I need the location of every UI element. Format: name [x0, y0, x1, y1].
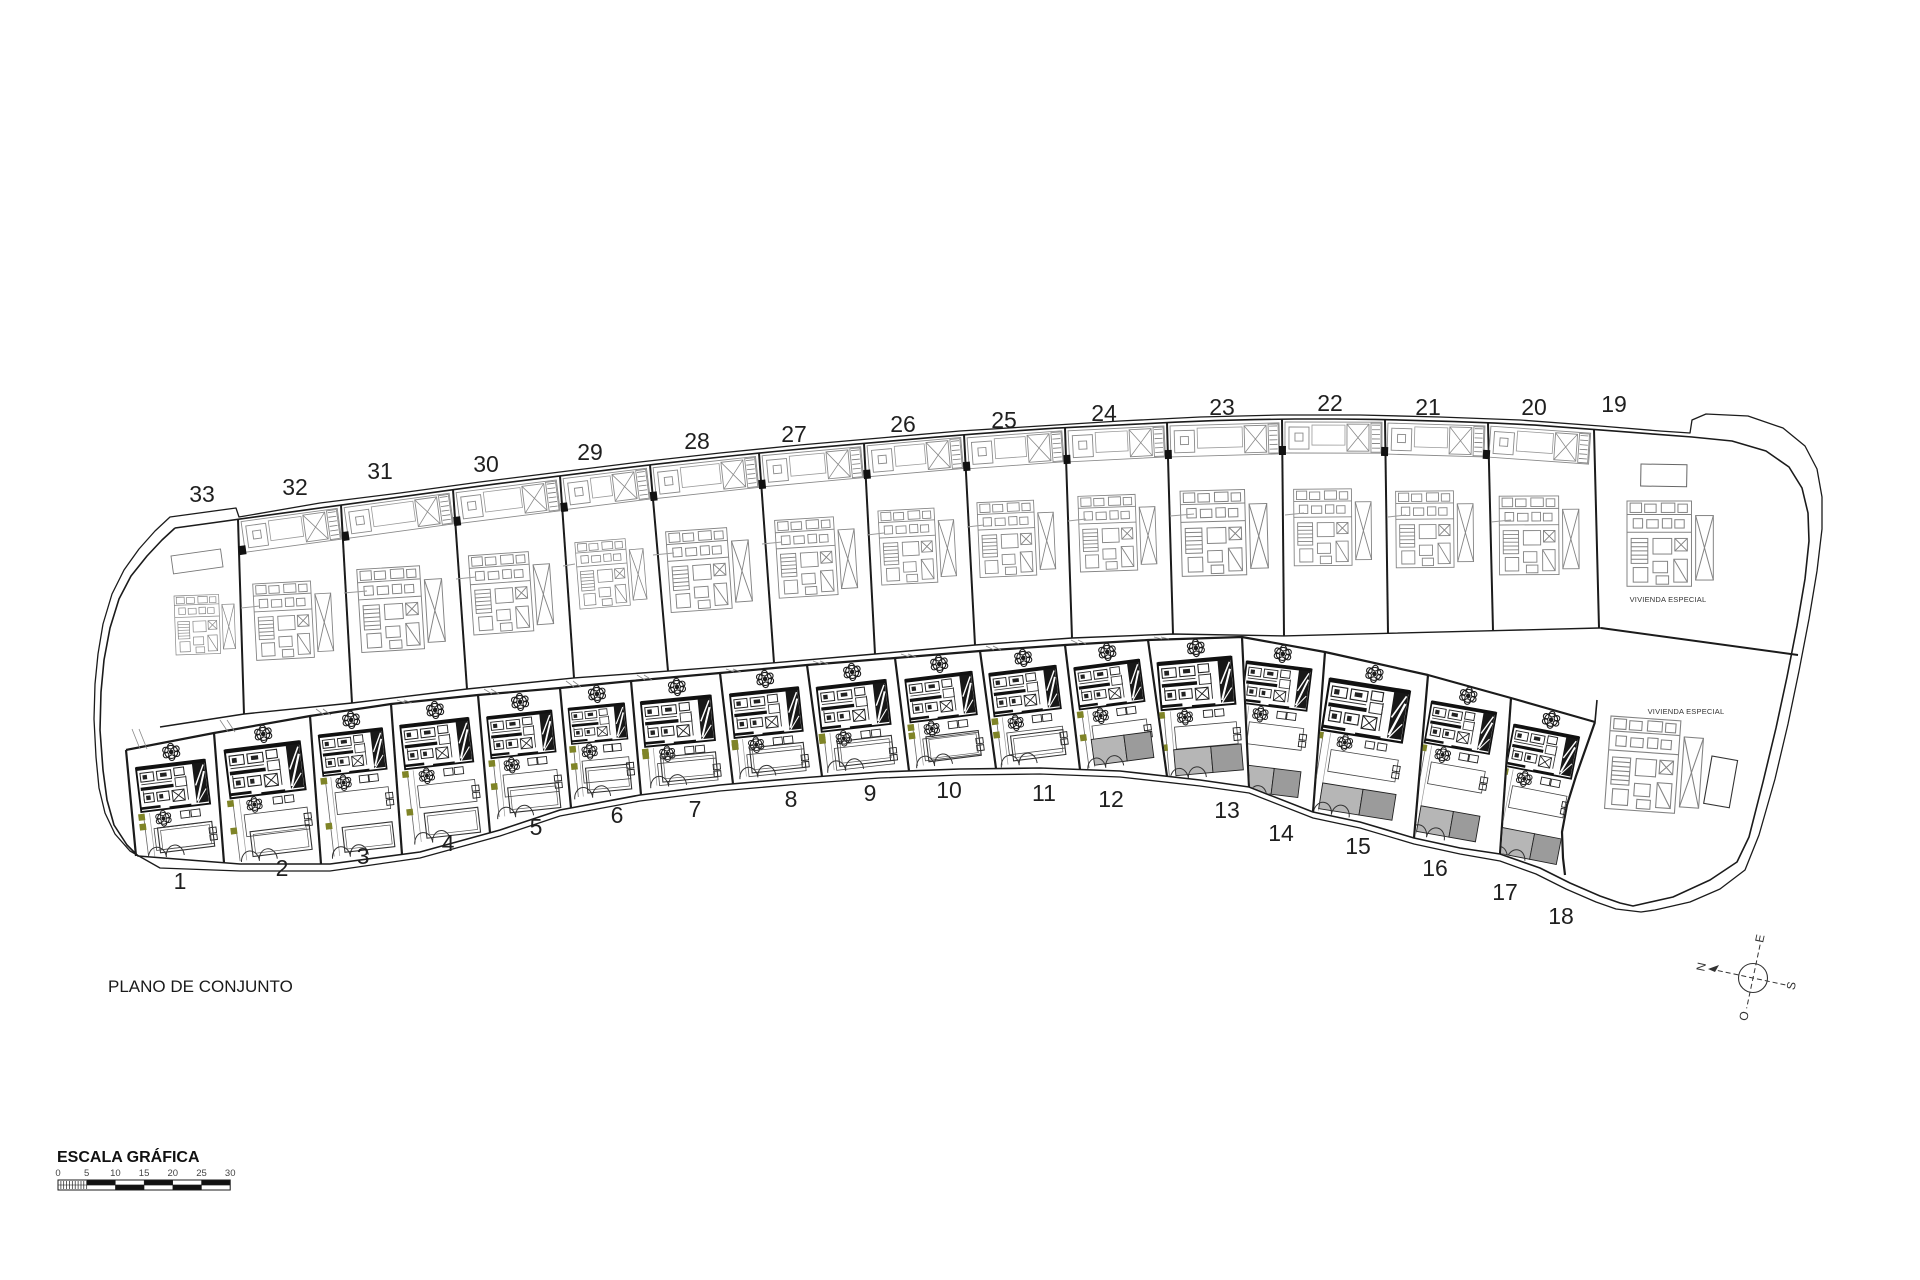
svg-text:27: 27 [781, 421, 807, 447]
svg-text:11: 11 [1032, 780, 1056, 806]
svg-text:25: 25 [991, 407, 1017, 433]
svg-text:ESCALA GRÁFICA: ESCALA GRÁFICA [57, 1147, 200, 1166]
svg-text:12: 12 [1098, 786, 1124, 812]
svg-text:8: 8 [785, 786, 798, 812]
svg-text:5: 5 [530, 814, 543, 840]
svg-text:VIVIENDA ESPECIAL: VIVIENDA ESPECIAL [1648, 707, 1725, 716]
svg-text:31: 31 [367, 458, 393, 484]
svg-text:4: 4 [442, 830, 455, 856]
svg-text:23: 23 [1209, 394, 1235, 420]
svg-text:3: 3 [357, 843, 370, 869]
svg-text:28: 28 [684, 428, 710, 454]
svg-text:10: 10 [110, 1168, 121, 1179]
svg-text:PLANO DE CONJUNTO: PLANO DE CONJUNTO [108, 977, 293, 996]
svg-text:7: 7 [689, 796, 702, 822]
svg-text:21: 21 [1415, 394, 1441, 420]
svg-text:9: 9 [864, 780, 877, 806]
svg-text:24: 24 [1091, 400, 1117, 426]
svg-text:6: 6 [611, 802, 624, 828]
svg-text:18: 18 [1548, 903, 1574, 929]
svg-text:29: 29 [577, 439, 603, 465]
svg-text:0: 0 [55, 1168, 60, 1179]
svg-text:10: 10 [936, 777, 962, 803]
svg-text:14: 14 [1268, 820, 1294, 846]
svg-text:33: 33 [189, 481, 215, 507]
svg-text:30: 30 [473, 451, 499, 477]
svg-text:32: 32 [282, 474, 308, 500]
svg-text:22: 22 [1317, 390, 1343, 416]
svg-text:30: 30 [225, 1168, 236, 1179]
svg-text:20: 20 [168, 1168, 179, 1179]
svg-text:1: 1 [174, 868, 187, 894]
svg-text:2: 2 [276, 855, 289, 881]
svg-text:20: 20 [1521, 394, 1547, 420]
svg-text:19: 19 [1601, 391, 1627, 417]
svg-text:VIVIENDA ESPECIAL: VIVIENDA ESPECIAL [1630, 595, 1707, 604]
svg-text:25: 25 [196, 1168, 207, 1179]
svg-text:15: 15 [1345, 833, 1371, 859]
svg-text:13: 13 [1214, 797, 1240, 823]
svg-text:17: 17 [1492, 879, 1518, 905]
svg-text:26: 26 [890, 411, 916, 437]
svg-text:16: 16 [1422, 855, 1448, 881]
svg-text:5: 5 [84, 1168, 89, 1179]
svg-text:15: 15 [139, 1168, 150, 1179]
